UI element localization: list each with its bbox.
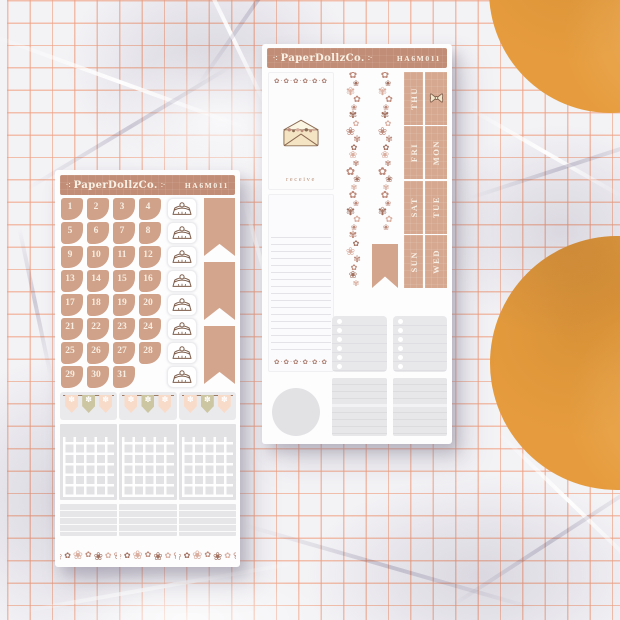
- washi-grid-sticker-row: [60, 424, 236, 500]
- checkbox-circle: [398, 364, 403, 369]
- sticker-sheet-right: ·: PaperDollzCo. :· HA6M011 ✿·✿·✿·✿·✿·✿ …: [262, 44, 452, 444]
- flower-icon: ✽: [204, 395, 211, 413]
- flower-icon: ✿: [145, 551, 152, 559]
- date-sticker: 30: [87, 366, 109, 388]
- receive-label: receive: [269, 176, 333, 183]
- date-sticker: 14: [87, 270, 109, 292]
- date-sticker: 21: [61, 318, 83, 340]
- checklist-sticker: [332, 316, 387, 372]
- checkbox-circle: [398, 319, 403, 324]
- checklist-row: [393, 353, 448, 362]
- pie-icon: [170, 344, 194, 362]
- day-column-outer: MONTUEWED: [425, 72, 447, 288]
- day-label: SUN: [409, 251, 419, 273]
- checkbox-circle: [337, 364, 342, 369]
- flower-icon: ✿: [165, 552, 172, 560]
- pennant: ✽: [99, 395, 112, 413]
- circle-sticker: [272, 388, 320, 436]
- date-sticker: 1: [61, 198, 83, 220]
- date-label: 4: [146, 202, 151, 212]
- day-sticker: SUN: [404, 235, 423, 288]
- pennant: ✽: [201, 395, 214, 413]
- bunting-sticker: ✽✽✽: [119, 392, 176, 420]
- pie-icon: [170, 320, 194, 338]
- sku-code: HA6M011: [185, 181, 229, 190]
- date-sticker: 15: [113, 270, 135, 292]
- day-label: MON: [431, 140, 441, 165]
- pie-sticker: [167, 246, 197, 268]
- checkbox-circle: [337, 346, 342, 351]
- flower-icon: ❀: [192, 549, 202, 561]
- lined-sticker: [60, 504, 117, 536]
- pie-sticker: [167, 198, 197, 220]
- date-label: 21: [65, 322, 75, 332]
- flower-icon: ❀: [173, 549, 176, 561]
- ruled-lines: [271, 231, 331, 351]
- flower-icon: ❀: [73, 549, 83, 561]
- checklist-row: [393, 326, 448, 335]
- day-sticker: TUE: [425, 181, 447, 234]
- date-label: 8: [146, 226, 151, 236]
- date-sticker: 11: [113, 246, 135, 268]
- pennant: ✽: [82, 395, 95, 413]
- flower-icon: ❀: [179, 551, 181, 562]
- floral-border-sticker: ❀✿❀✿❀✿❀: [179, 538, 236, 562]
- flower-icon: ✿: [184, 552, 191, 560]
- date-sticker: 28: [139, 342, 161, 364]
- floral-border-sticker: ❀✿❀✿❀✿❀: [120, 538, 177, 562]
- date-label: 23: [117, 322, 127, 332]
- day-label: TUE: [431, 196, 441, 218]
- date-label: 31: [117, 370, 127, 380]
- date-label: 18: [91, 298, 101, 308]
- date-label: 5: [68, 226, 73, 236]
- envelope-icon: [279, 117, 323, 149]
- date-sticker: 7: [113, 222, 135, 244]
- bunting-sticker: ✽✽✽: [179, 392, 236, 420]
- floral-strip: ✿❀✾✿❀✾✿❀✾✿❀✾✿❀✾✿❀✾✿❀✾✿❀✾✿❀✾: [340, 72, 366, 294]
- date-label: 11: [118, 250, 127, 260]
- checkbox-circle: [337, 355, 342, 360]
- flower-icon: ✽: [221, 395, 228, 413]
- date-sticker: 22: [87, 318, 109, 340]
- checklist-row: [332, 353, 387, 362]
- flower-icon: ✽: [85, 395, 92, 413]
- pie-icon: [170, 200, 194, 218]
- pie-icon: [170, 248, 194, 266]
- date-label: 10: [91, 250, 101, 260]
- checklist-row: [332, 335, 387, 344]
- date-sticker: 8: [139, 222, 161, 244]
- checklist-sticker-row: [332, 316, 447, 372]
- flower-icon: ❀: [383, 224, 390, 232]
- washi-grid-sticker: [179, 424, 236, 500]
- day-label: SAT: [409, 197, 419, 217]
- checklist-row: [332, 326, 387, 335]
- brand-decor-right: :·: [161, 182, 166, 189]
- checklist-sticker: [393, 316, 448, 372]
- date-label: 29: [65, 370, 75, 380]
- flag-sticker: [204, 262, 235, 320]
- date-label: 12: [143, 250, 153, 260]
- date-sticker: 26: [87, 342, 109, 364]
- washi-grid-sticker: [119, 424, 176, 500]
- checkbox-circle: [398, 346, 403, 351]
- brand-name: PaperDollzCo.: [281, 53, 365, 64]
- date-sticker: 25: [61, 342, 83, 364]
- checklist-row: [332, 362, 387, 371]
- date-label: 9: [68, 250, 73, 260]
- date-sticker: 17: [61, 294, 83, 316]
- pie-sticker: [167, 270, 197, 292]
- checkbox-circle: [337, 328, 342, 333]
- day-sticker: MON: [425, 126, 447, 179]
- flag-sticker: [204, 326, 235, 384]
- pennant: ✽: [124, 395, 137, 413]
- flower-icon: ✿: [224, 552, 231, 560]
- pennant: ✽: [184, 395, 197, 413]
- floral-strip: ✿❀✾✿❀✾✿❀✾✿❀✾✿❀✾✿❀✾✿❀: [372, 72, 398, 238]
- date-sticker: 29: [61, 366, 83, 388]
- flower-icon: ✾: [353, 280, 360, 288]
- date-sticker: 27: [113, 342, 135, 364]
- date-sticker: 3: [113, 198, 135, 220]
- date-sticker: 9: [61, 246, 83, 268]
- flower-icon: ❀: [120, 551, 122, 562]
- date-sticker: 2: [87, 198, 109, 220]
- day-sticker: WED: [425, 235, 447, 288]
- pie-sticker: [167, 342, 197, 364]
- bow-sticker: [425, 72, 447, 125]
- pie-icon: [170, 224, 194, 242]
- date-label: 25: [65, 346, 75, 356]
- happy-mail-sticker: ✿·✿·✿·✿·✿·✿ receive: [268, 72, 334, 190]
- flower-icon: ✿: [105, 552, 112, 560]
- note-panel-row: [332, 378, 447, 436]
- date-sticker: 12: [139, 246, 161, 268]
- notes-sticker: ✿·✿·✿·✿·✿·✿: [268, 194, 334, 372]
- brand-decor-left: ·:: [273, 55, 278, 62]
- product-photo: ·: PaperDollzCo. :· HA6M011 123456789101…: [0, 0, 620, 620]
- date-label: 16: [143, 274, 153, 284]
- date-label: 26: [91, 346, 101, 356]
- flower-icon: ❀: [94, 551, 103, 562]
- washi-grid-sticker: [60, 424, 117, 500]
- date-sticker: 31: [113, 366, 135, 388]
- date-label: 19: [117, 298, 127, 308]
- pennant-flag-sticker: [372, 244, 398, 288]
- pie-sticker: [167, 222, 197, 244]
- pennant: ✽: [65, 395, 78, 413]
- checklist-row: [332, 344, 387, 353]
- flower-icon: ❀: [233, 549, 236, 561]
- checklist-row: [393, 362, 448, 371]
- flower-icon: ❀: [213, 551, 222, 562]
- date-label: 2: [94, 202, 99, 212]
- checkbox-circle: [337, 337, 342, 342]
- lined-sticker: [179, 504, 236, 536]
- floral-border-sticker: ❀✿❀✿❀✿❀: [60, 538, 117, 562]
- date-label: 7: [120, 226, 125, 236]
- date-sticker: 16: [139, 270, 161, 292]
- flower-icon: ✿: [85, 551, 92, 559]
- date-label: 30: [91, 370, 101, 380]
- flower-icon: ✽: [162, 395, 169, 413]
- checklist-row: [393, 335, 448, 344]
- flower-icon: ❀: [114, 549, 117, 561]
- date-sticker: 18: [87, 294, 109, 316]
- date-label: 1: [68, 202, 73, 212]
- date-label: 22: [91, 322, 101, 332]
- vine-border: ✿·✿·✿·✿·✿·✿: [269, 77, 333, 85]
- date-label: 20: [143, 298, 153, 308]
- flower-icon: ❀: [133, 549, 143, 561]
- floral-border-row: ❀✿❀✿❀✿❀❀✿❀✿❀✿❀❀✿❀✿❀✿❀: [60, 538, 236, 562]
- sheet-header-bar: ·: PaperDollzCo. :· HA6M011: [60, 175, 235, 195]
- date-label: 15: [117, 274, 127, 284]
- date-sticker: 5: [61, 222, 83, 244]
- date-sticker: 24: [139, 318, 161, 340]
- pie-sticker: [167, 294, 197, 316]
- bunting-sticker-row: ✽✽✽✽✽✽✽✽✽: [60, 392, 236, 420]
- checkbox-circle: [398, 355, 403, 360]
- pie-icon: [170, 272, 194, 290]
- date-sticker: 20: [139, 294, 161, 316]
- flower-icon: ✽: [187, 395, 194, 413]
- date-label: 3: [120, 202, 125, 212]
- date-label: 27: [117, 346, 127, 356]
- checklist-row: [393, 317, 448, 326]
- vine-border: ✿·✿·✿·✿·✿·✿: [269, 358, 333, 366]
- sheet-header-bar: ·: PaperDollzCo. :· HA6M011: [267, 48, 447, 68]
- date-sticker: 19: [113, 294, 135, 316]
- checkbox-circle: [398, 337, 403, 342]
- date-sticker: 13: [61, 270, 83, 292]
- flower-icon: ✽: [102, 395, 109, 413]
- brand-name: PaperDollzCo.: [74, 180, 158, 191]
- lined-sticker-row: [60, 504, 236, 536]
- flower-icon: ✿: [64, 552, 71, 560]
- day-label: WED: [431, 249, 441, 274]
- brand-decor-right: :·: [368, 55, 373, 62]
- day-sticker: FRI: [404, 126, 423, 179]
- date-label: 13: [65, 274, 75, 284]
- date-label: 6: [94, 226, 99, 236]
- day-sticker: SAT: [404, 181, 423, 234]
- date-label: 17: [65, 298, 75, 308]
- flower-icon: ✽: [145, 395, 152, 413]
- flower-icon: ✽: [68, 395, 75, 413]
- flag-sticker: [204, 198, 235, 256]
- date-label: 24: [143, 322, 153, 332]
- date-sticker: 4: [139, 198, 161, 220]
- flower-icon: ✽: [128, 395, 135, 413]
- note-panel-sticker: [393, 378, 448, 436]
- pie-sticker: [167, 366, 197, 388]
- date-sticker: 10: [87, 246, 109, 268]
- pie-icon: [170, 368, 194, 386]
- checklist-row: [332, 317, 387, 326]
- checkbox-circle: [398, 328, 403, 333]
- date-sticker-grid: 1234567891011121314151617181920212223242…: [61, 198, 165, 388]
- flower-icon: ✿: [204, 551, 211, 559]
- day-column-inner: THUFRISATSUN: [404, 72, 423, 288]
- date-sticker: 23: [113, 318, 135, 340]
- pie-sticker: [167, 318, 197, 340]
- day-sticker: THU: [404, 72, 423, 125]
- date-sticker: 6: [87, 222, 109, 244]
- day-label: FRI: [409, 143, 419, 162]
- pennant: ✽: [141, 395, 154, 413]
- date-label: 28: [143, 346, 153, 356]
- pennant: ✽: [158, 395, 171, 413]
- bunting-sticker: ✽✽✽: [60, 392, 117, 420]
- flower-icon: ❀: [153, 551, 162, 562]
- checklist-row: [393, 344, 448, 353]
- date-label: 14: [91, 274, 101, 284]
- sticker-sheet-left: ·: PaperDollzCo. :· HA6M011 123456789101…: [55, 170, 240, 567]
- lined-sticker: [119, 504, 176, 536]
- flower-icon: ✿: [124, 552, 131, 560]
- sku-code: HA6M011: [397, 54, 441, 63]
- brand-decor-left: ·:: [66, 182, 71, 189]
- flower-icon: ❀: [60, 551, 62, 562]
- pennant: ✽: [218, 395, 231, 413]
- pie-icon: [170, 296, 194, 314]
- bow-icon: [429, 92, 444, 104]
- day-label: THU: [409, 87, 419, 110]
- checkbox-circle: [337, 319, 342, 324]
- note-panel-sticker: [332, 378, 387, 436]
